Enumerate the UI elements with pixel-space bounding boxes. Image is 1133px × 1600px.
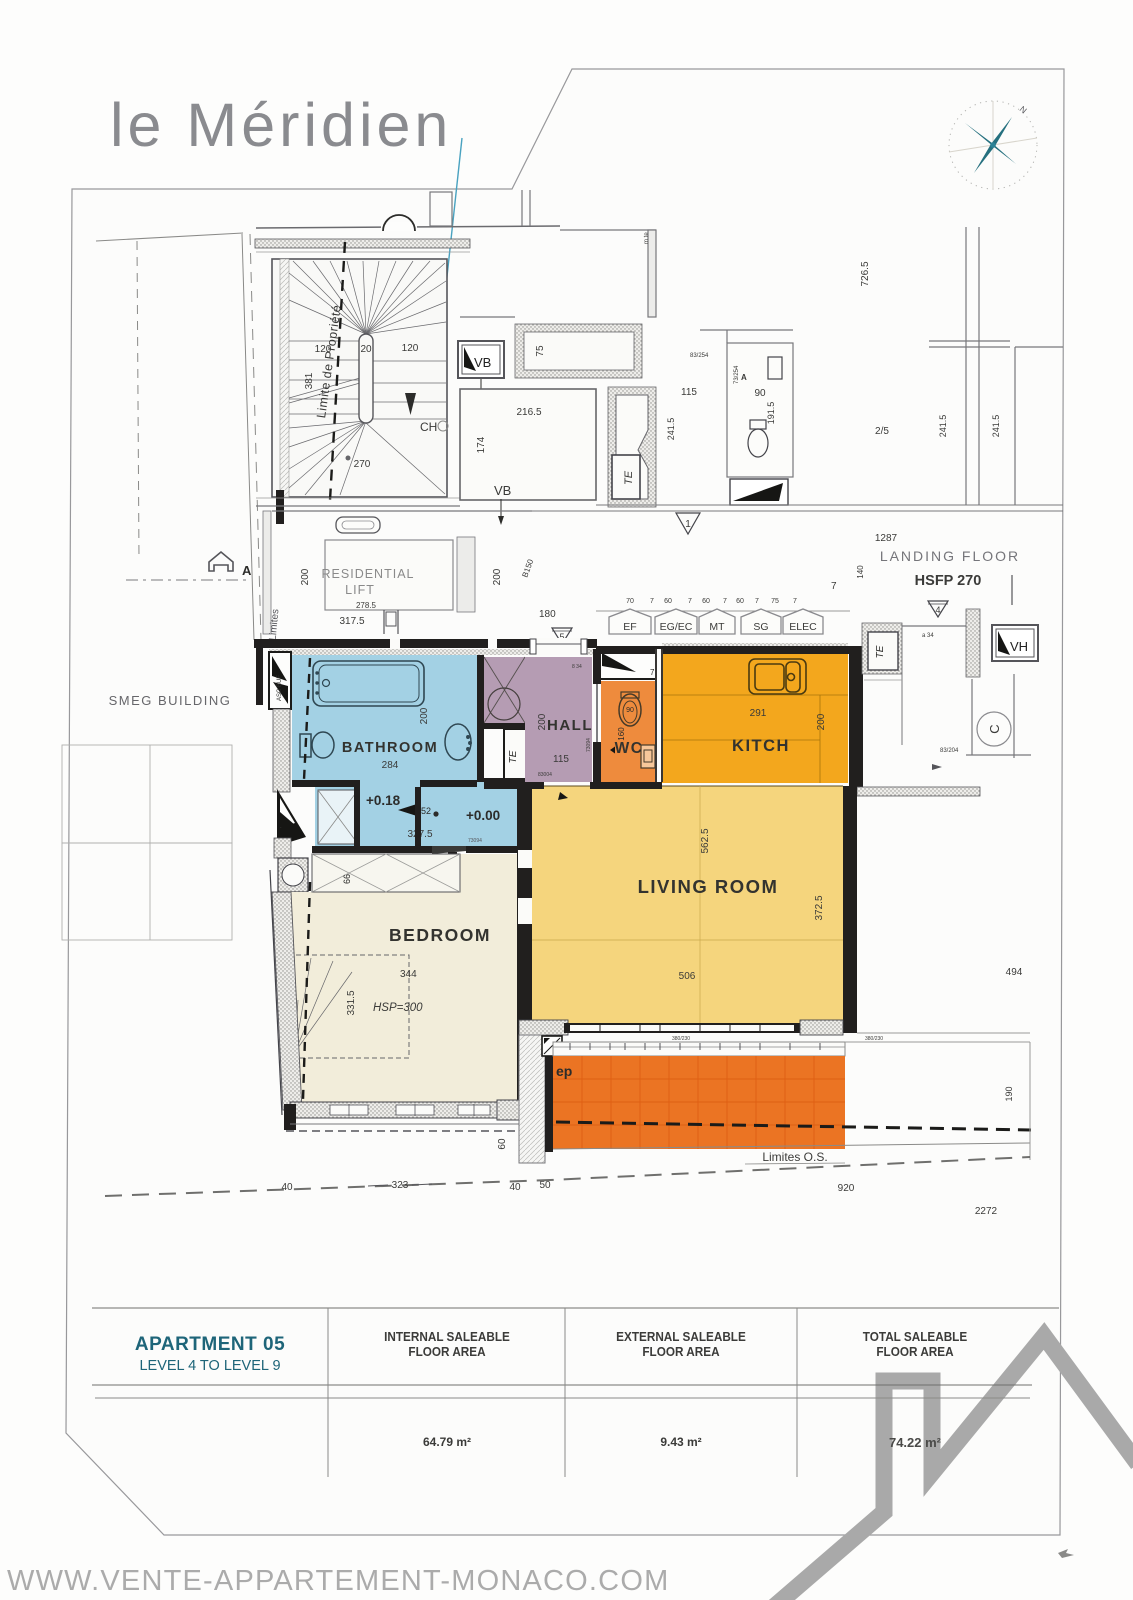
svg-text:40: 40 <box>509 1182 521 1193</box>
svg-text:380/230: 380/230 <box>672 1036 690 1042</box>
svg-text:7: 7 <box>755 598 759 605</box>
svg-text:494: 494 <box>1006 967 1023 978</box>
svg-text:200: 200 <box>537 713 548 730</box>
svg-text:506: 506 <box>679 971 696 982</box>
svg-text:200: 200 <box>419 707 430 724</box>
svg-text:HSP=300: HSP=300 <box>373 1002 423 1014</box>
svg-text:180: 180 <box>539 609 556 620</box>
svg-text:160: 160 <box>617 727 626 741</box>
svg-text:LIFT: LIFT <box>345 583 375 597</box>
svg-text:A: A <box>242 563 252 578</box>
svg-text:216.5: 216.5 <box>516 407 541 418</box>
svg-text:APARTMENT 05: APARTMENT 05 <box>135 1334 285 1355</box>
svg-text:140: 140 <box>856 565 865 579</box>
svg-text:1: 1 <box>685 519 691 530</box>
svg-text:TE: TE <box>623 470 635 485</box>
svg-text:le Méridien: le Méridien <box>110 91 452 159</box>
svg-text:284: 284 <box>382 760 399 771</box>
svg-text:EF: EF <box>623 621 636 633</box>
svg-text:291: 291 <box>750 708 767 719</box>
svg-text:ELEC: ELEC <box>789 621 817 633</box>
svg-text:73094: 73094 <box>468 838 482 844</box>
svg-text:BATHROOM: BATHROOM <box>342 740 438 756</box>
svg-text:75: 75 <box>535 345 546 357</box>
svg-text:C: C <box>987 724 1002 733</box>
svg-text:174: 174 <box>476 436 487 453</box>
svg-text:FLOOR AREA: FLOOR AREA <box>642 1345 719 1359</box>
svg-text:ep: ep <box>556 1063 572 1079</box>
svg-text:1287: 1287 <box>875 533 898 544</box>
svg-text:74.22 m²: 74.22 m² <box>889 1435 942 1450</box>
svg-text:7: 7 <box>688 598 692 605</box>
svg-text:2272: 2272 <box>975 1206 998 1217</box>
svg-text:TE: TE <box>508 750 519 763</box>
svg-text:73/254: 73/254 <box>734 365 740 384</box>
svg-text:WWW.VENTE-APPARTEMENT-MONACO.C: WWW.VENTE-APPARTEMENT-MONACO.COM <box>7 1565 669 1597</box>
svg-text:562.5: 562.5 <box>700 828 711 853</box>
svg-text:73094: 73094 <box>586 738 592 752</box>
svg-text:KITCH: KITCH <box>732 737 790 755</box>
svg-text:50: 50 <box>539 1180 551 1191</box>
svg-text:323: 323 <box>392 1180 409 1191</box>
svg-text:VH: VH <box>1010 639 1028 654</box>
svg-text:241.5: 241.5 <box>938 415 948 438</box>
svg-text:70: 70 <box>626 598 634 605</box>
svg-text:278.5: 278.5 <box>356 601 377 610</box>
svg-text:317.5: 317.5 <box>339 616 364 627</box>
svg-text:115: 115 <box>553 754 569 765</box>
svg-text:8 34: 8 34 <box>572 664 582 670</box>
svg-text:372.5: 372.5 <box>814 895 825 920</box>
svg-text:FLOOR AREA: FLOOR AREA <box>408 1345 485 1359</box>
svg-text:+0.00: +0.00 <box>466 808 500 823</box>
svg-text:270: 270 <box>354 459 371 470</box>
svg-text:331.5: 331.5 <box>346 990 357 1015</box>
svg-text:83004: 83004 <box>538 772 552 778</box>
svg-text:7: 7 <box>650 668 655 677</box>
svg-text:VB: VB <box>474 355 491 370</box>
svg-text:TOTAL SALEABLE: TOTAL SALEABLE <box>863 1330 967 1344</box>
svg-text:LANDING FLOOR: LANDING FLOOR <box>880 548 1020 564</box>
svg-text:726.5: 726.5 <box>860 261 871 286</box>
svg-text:MT: MT <box>709 621 725 633</box>
svg-text:90: 90 <box>626 707 634 714</box>
svg-text:64.79 m²: 64.79 m² <box>423 1435 471 1449</box>
svg-text:200: 200 <box>816 713 827 730</box>
svg-text:FLOOR AREA: FLOOR AREA <box>876 1345 953 1359</box>
svg-text:60: 60 <box>702 598 710 605</box>
svg-text:380/230: 380/230 <box>865 1036 883 1042</box>
svg-text:HSFP 270: HSFP 270 <box>915 573 982 589</box>
svg-text:344: 344 <box>400 969 417 980</box>
svg-text:83/204: 83/204 <box>940 748 959 754</box>
svg-text:75: 75 <box>771 598 779 605</box>
svg-text:RESIDENTIAL: RESIDENTIAL <box>322 567 415 581</box>
svg-text:m te: m te <box>644 232 650 244</box>
svg-text:WC: WC <box>615 740 644 757</box>
svg-text:+0.18: +0.18 <box>366 793 401 808</box>
svg-text:SG: SG <box>753 621 768 633</box>
svg-text:381: 381 <box>304 372 315 389</box>
svg-text:20: 20 <box>360 344 372 355</box>
svg-text:60: 60 <box>736 598 744 605</box>
svg-text:CH: CH <box>420 420 437 434</box>
svg-text:LIVING ROOM: LIVING ROOM <box>638 876 779 897</box>
svg-text:A: A <box>741 373 747 382</box>
svg-text:a 34: a 34 <box>922 633 934 639</box>
svg-text:920: 920 <box>838 1183 855 1194</box>
svg-text:BEDROOM: BEDROOM <box>389 925 491 945</box>
svg-text:241.5: 241.5 <box>991 415 1001 438</box>
svg-text:LEVEL 4 TO LEVEL 9: LEVEL 4 TO LEVEL 9 <box>139 1358 280 1374</box>
svg-text:90: 90 <box>754 388 766 399</box>
svg-text:60: 60 <box>664 598 672 605</box>
svg-text:40: 40 <box>281 1182 293 1193</box>
svg-text:Limites O.S.: Limites O.S. <box>762 1150 827 1164</box>
svg-text:9.43 m²: 9.43 m² <box>660 1435 701 1449</box>
svg-text:4: 4 <box>935 605 940 615</box>
svg-text:SMEG BUILDING: SMEG BUILDING <box>109 693 232 708</box>
svg-text:7: 7 <box>831 581 837 592</box>
svg-text:INTERNAL SALEABLE: INTERNAL SALEABLE <box>384 1330 510 1344</box>
svg-text:7: 7 <box>793 598 797 605</box>
svg-text:191.5: 191.5 <box>766 402 776 425</box>
svg-text:60: 60 <box>497 1138 508 1150</box>
svg-text:EXTERNAL SALEABLE: EXTERNAL SALEABLE <box>616 1330 746 1344</box>
svg-text:TE: TE <box>875 645 886 658</box>
svg-text:115: 115 <box>681 387 697 398</box>
svg-text:ASC BUF: ASC BUF <box>277 675 283 701</box>
svg-text:2/5: 2/5 <box>875 426 889 437</box>
svg-text:EG/EC: EG/EC <box>660 621 693 633</box>
svg-text:200: 200 <box>300 568 311 585</box>
svg-text:52: 52 <box>421 806 431 816</box>
svg-text:7: 7 <box>650 598 654 605</box>
svg-text:190: 190 <box>1004 1086 1014 1101</box>
svg-text:83/254: 83/254 <box>690 353 709 359</box>
svg-text:200: 200 <box>492 568 503 585</box>
svg-text:120: 120 <box>402 343 419 354</box>
svg-text:66: 66 <box>342 874 352 884</box>
svg-text:HALL: HALL <box>547 717 593 734</box>
svg-text:241.5: 241.5 <box>666 418 676 441</box>
svg-text:7: 7 <box>723 598 727 605</box>
svg-text:VB: VB <box>494 483 511 498</box>
